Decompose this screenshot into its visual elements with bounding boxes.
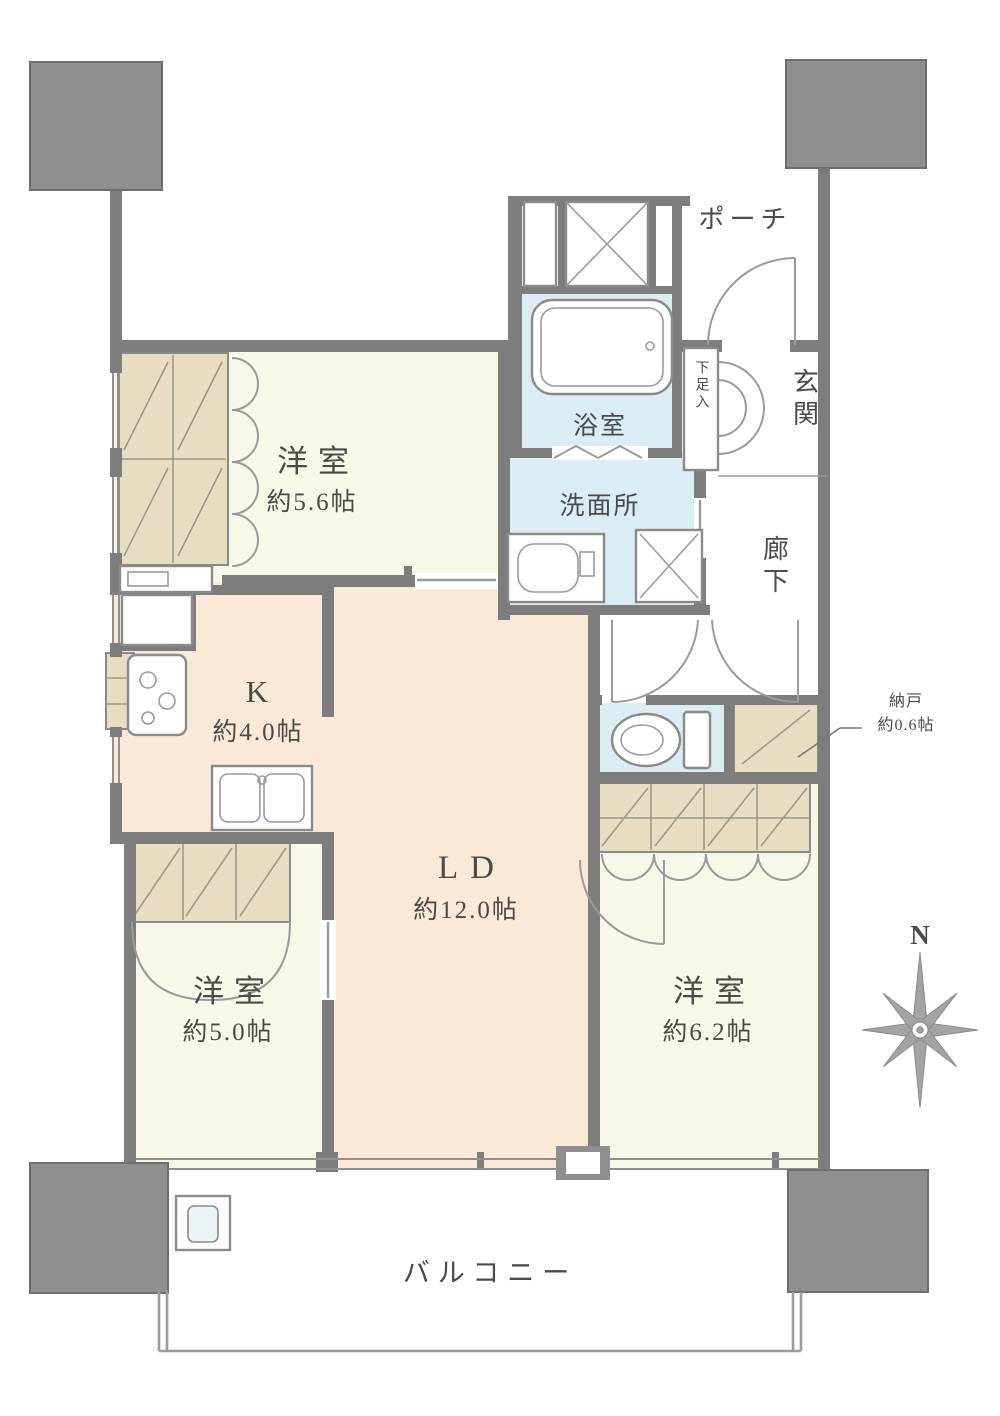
kitchen-size: 約4.0帖 [212, 718, 303, 746]
pillar-top-right [786, 60, 926, 168]
corridor-label: 廊下 [760, 535, 789, 599]
kitchen-name: K [246, 674, 278, 709]
corridor-double-doors [612, 620, 798, 702]
balcony-fence [159, 1290, 801, 1351]
western3-size: 約6.2帖 [662, 1018, 753, 1046]
washroom-label: 洗面所 [559, 492, 640, 520]
western1-size: 約5.6帖 [266, 488, 357, 516]
floor-plan-page: N 納戸 約0.6帖 ポーチ 玄関 下足入 浴室 洗面所 廊下 洋室 約5.6帖… [0, 0, 1000, 1416]
washing-machine-icon [636, 530, 702, 602]
shoe-box-label: 下足入 [694, 360, 710, 411]
living-name: LD [438, 850, 506, 886]
bathtub-icon [532, 300, 672, 394]
compass-icon: N [846, 920, 993, 1108]
closet-western2 [130, 842, 290, 922]
storage-size-label: 約0.6帖 [877, 716, 934, 734]
compass-north-label: N [910, 920, 930, 950]
meter-box [524, 202, 556, 286]
western1-name: 洋室 [277, 444, 359, 479]
porch-label: ポーチ [698, 205, 791, 234]
balcony-drain-icon [176, 1196, 230, 1250]
porch-entrance-door [708, 258, 795, 345]
western2-name: 洋室 [193, 974, 275, 1009]
stove-icon [128, 655, 186, 735]
pipe-space-icon [566, 202, 648, 286]
pillar-bottom-left [30, 1163, 168, 1293]
shoe-cabinet-doors [718, 362, 764, 454]
balcony-label: バルコニー [403, 1258, 577, 1288]
bath-label: 浴室 [573, 412, 627, 440]
kitchen-sink-icon [212, 766, 312, 830]
fridge-space [122, 595, 192, 645]
pillar-top-left [30, 62, 162, 190]
bath-folding-door [552, 446, 648, 460]
western1-counter [120, 566, 212, 592]
toilet-icon [612, 712, 710, 768]
balcony-step [556, 1146, 610, 1180]
pillar-bottom-right [788, 1170, 928, 1292]
living-size: 約12.0帖 [413, 896, 519, 924]
entrance-label: 玄関 [790, 368, 819, 432]
western2-size: 約5.0帖 [182, 1018, 273, 1046]
washbasin-icon [508, 534, 604, 602]
storage-name-label: 納戸 [889, 692, 923, 710]
western3-name: 洋室 [673, 974, 755, 1009]
floor-plan: N 納戸 約0.6帖 ポーチ 玄関 下足入 浴室 洗面所 廊下 洋室 約5.6帖… [0, 0, 1000, 1416]
